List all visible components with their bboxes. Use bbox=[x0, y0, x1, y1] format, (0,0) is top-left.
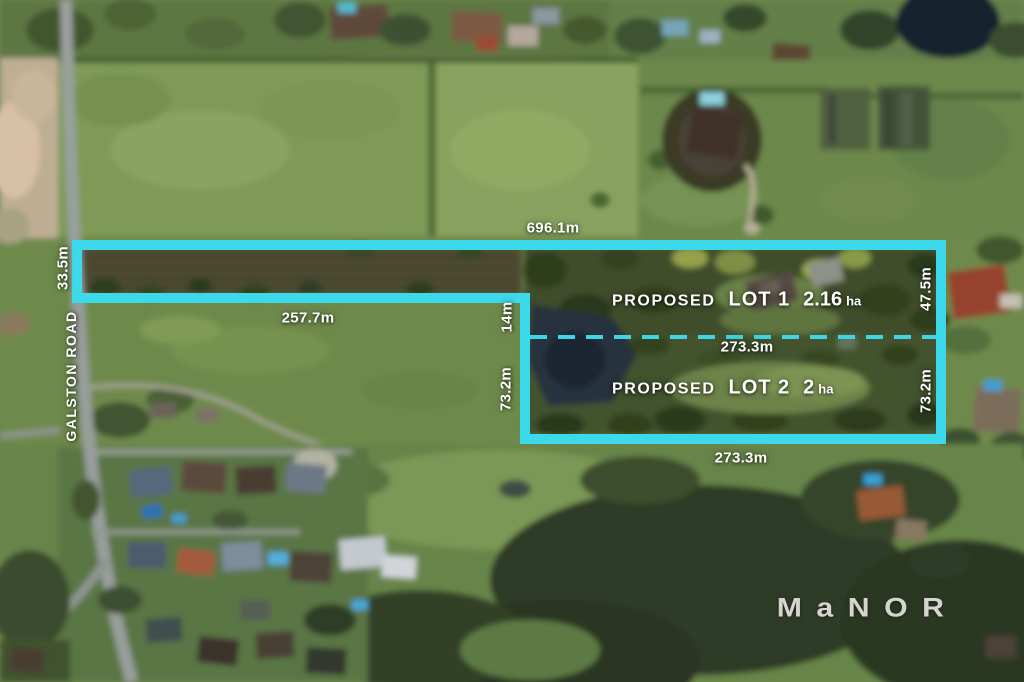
lot2-proposed-text: PROPOSED bbox=[612, 380, 716, 398]
measurement-lot1-right-depth: 47.5m bbox=[918, 267, 935, 311]
measurement-left-depth: 33.5m bbox=[55, 246, 72, 290]
lot1-area-group: 2.16 ha bbox=[803, 288, 861, 311]
measurement-divider-width: 273.3m bbox=[721, 339, 774, 356]
lot2-label: PROPOSED LOT 2 2 ha bbox=[612, 376, 833, 399]
lot1-area-unit: ha bbox=[846, 293, 861, 308]
measurement-top-width: 696.1m bbox=[527, 220, 580, 237]
measurement-bottom-width: 273.3m bbox=[715, 450, 768, 467]
lot1-name: LOT 1 bbox=[729, 288, 791, 311]
lot2-area-value: 2 bbox=[803, 376, 814, 399]
measurement-strip-width: 257.7m bbox=[282, 310, 335, 327]
brand-logo: MaNOR bbox=[769, 593, 958, 624]
lot2-name: LOT 2 bbox=[729, 376, 791, 399]
lot1-label: PROPOSED LOT 1 2.16 ha bbox=[612, 288, 861, 311]
lot1-area-value: 2.16 bbox=[803, 288, 842, 311]
aerial-site-plan: 696.1m 33.5m GALSTON ROAD 257.7m 14m 73.… bbox=[0, 0, 1024, 682]
lot2-area-unit: ha bbox=[818, 381, 833, 396]
measurement-lot2-left-depth: 73.2m bbox=[498, 367, 515, 411]
road-name-label: GALSTON ROAD bbox=[63, 310, 79, 441]
lot1-proposed-text: PROPOSED bbox=[612, 292, 716, 310]
measurement-step-depth: 14m bbox=[499, 302, 516, 333]
measurement-lot2-right-depth: 73.2m bbox=[918, 369, 935, 413]
boundary-overlay bbox=[0, 0, 1024, 682]
lot2-area-group: 2 ha bbox=[803, 376, 833, 399]
